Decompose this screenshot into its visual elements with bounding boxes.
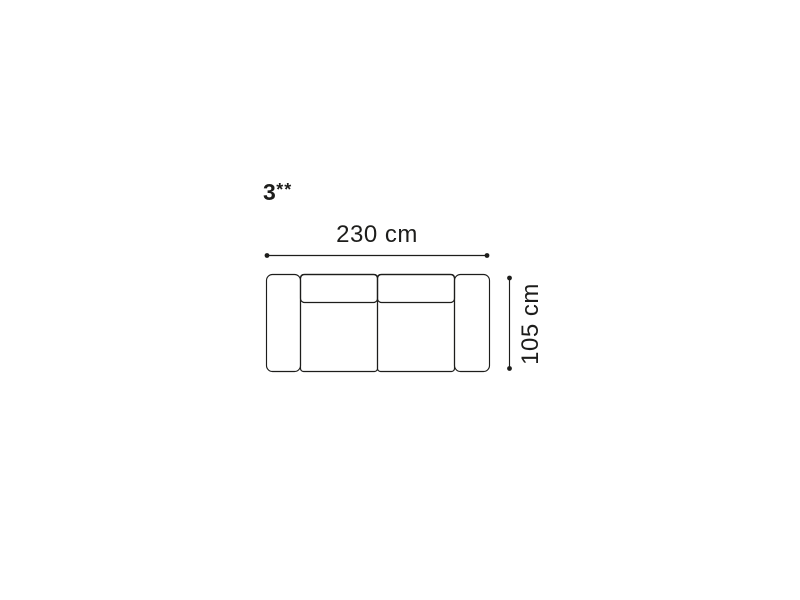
armrest-left [267, 275, 301, 372]
seat-cushion-left [301, 275, 378, 372]
depth-dim-dot-top [507, 276, 512, 281]
backrest-cushion-left [301, 275, 378, 303]
page-canvas: 3** 230 cm 105 cm [0, 0, 800, 600]
width-dimension-line [265, 253, 490, 258]
width-dim-dot-left [265, 253, 270, 258]
armrest-right [455, 275, 490, 372]
sofa-top-view-diagram [0, 0, 800, 600]
sofa-outline [267, 275, 490, 372]
backrest-cushion-right [378, 275, 455, 303]
depth-dim-dot-bottom [507, 366, 512, 371]
seat-cushion-right [378, 275, 455, 372]
width-dim-dot-right [485, 253, 490, 258]
depth-dimension-line [507, 276, 512, 371]
